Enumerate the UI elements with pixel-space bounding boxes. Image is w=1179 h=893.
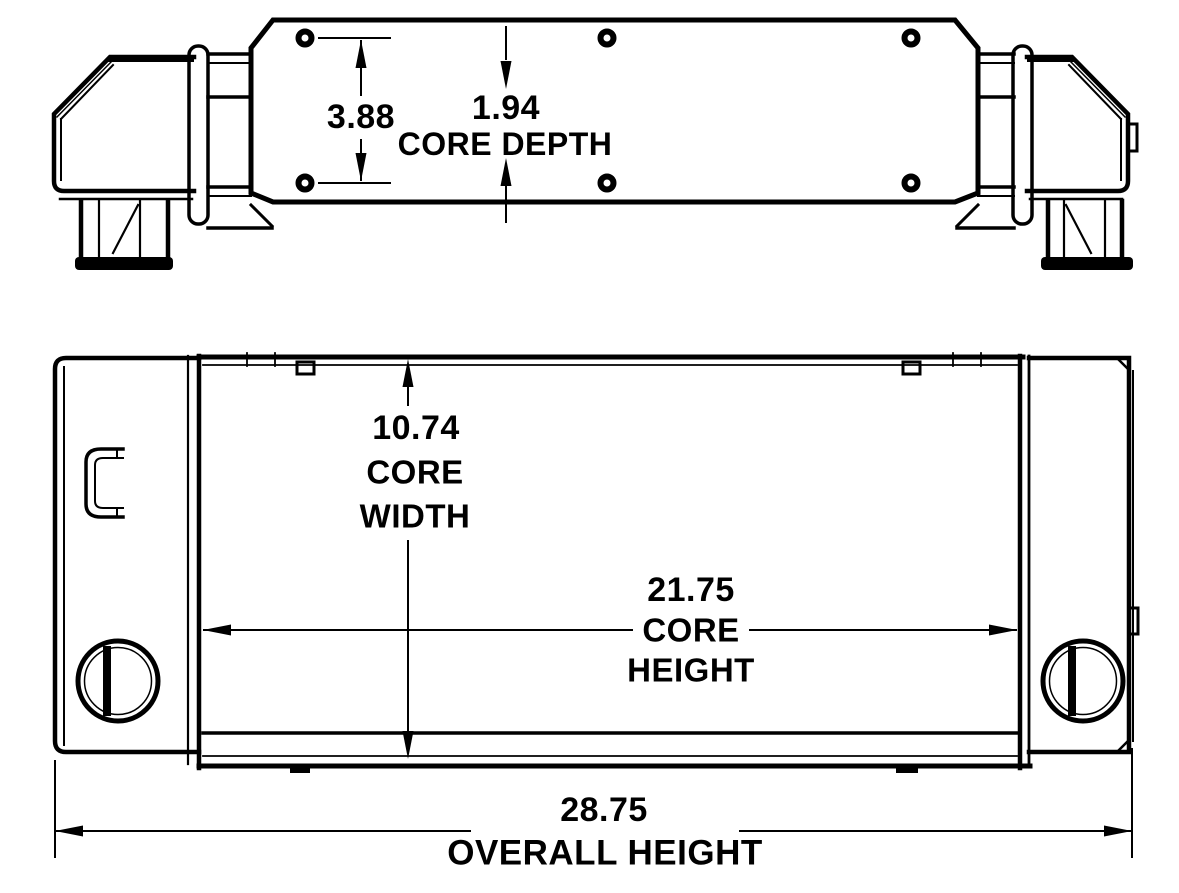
mounting-hole	[601, 32, 614, 45]
arrow-down-icon	[501, 61, 512, 89]
right-clamp-band	[1013, 46, 1032, 224]
right-tank-necks	[957, 54, 1014, 228]
dim-core-width: 10.74 CORE WIDTH	[360, 359, 471, 759]
handle-bracket	[86, 449, 123, 517]
mounting-hole	[299, 32, 312, 45]
dim-core-height-value: 21.75	[647, 571, 735, 609]
drawing-page: 3.88 1.94 CORE DEPTH	[0, 0, 1179, 893]
dim-core-depth: 1.94 CORE DEPTH	[398, 26, 613, 223]
dim-core-depth-value: 1.94	[472, 89, 540, 127]
arrow-up-icon	[403, 359, 414, 387]
top-mounting-tab	[297, 362, 314, 374]
arrow-down-icon	[356, 153, 367, 181]
right-tank-front-view	[1029, 358, 1138, 752]
mounting-hole	[905, 32, 918, 45]
bottom-mounting-tab	[290, 766, 310, 773]
left-drain-cap	[78, 641, 158, 721]
dim-core-height-label-2: HEIGHT	[627, 652, 755, 689]
top-mounting-tab	[903, 362, 920, 374]
dim-core-width-value: 10.74	[372, 409, 460, 447]
dim-hole-spacing-value: 3.88	[327, 98, 395, 136]
mounting-hole	[299, 177, 312, 190]
dim-overall-height-label: OVERALL HEIGHT	[447, 834, 763, 873]
arrow-down-icon	[403, 731, 414, 759]
arrow-right-icon	[1104, 826, 1132, 837]
dim-core-width-label-1: CORE	[366, 454, 463, 491]
front-view: 10.74 CORE WIDTH 21.75 CORE HEIGHT 28.75…	[55, 353, 1138, 873]
mounting-hole	[905, 177, 918, 190]
dim-hole-spacing: 3.88	[318, 38, 395, 183]
dim-core-height-label-1: CORE	[642, 612, 739, 649]
right-hose-bead	[1041, 257, 1133, 270]
right-tank-top-view	[1027, 57, 1137, 270]
dim-core-height: 21.75 CORE HEIGHT	[203, 571, 1017, 689]
left-tank-top-view	[54, 57, 194, 270]
arrow-right-icon	[989, 625, 1017, 636]
dim-core-width-label-2: WIDTH	[360, 498, 471, 535]
left-clamp-band	[189, 46, 208, 224]
arrow-up-icon	[356, 40, 367, 68]
bottom-mounting-tab	[896, 766, 918, 773]
mounting-hole	[601, 177, 614, 190]
right-outlet-pipe	[1041, 201, 1133, 270]
right-side-tab	[1128, 124, 1137, 151]
right-drain-cap	[1043, 641, 1123, 721]
dim-core-depth-label: CORE DEPTH	[398, 126, 613, 162]
arrow-up-icon	[501, 158, 512, 186]
left-hose-bead	[75, 257, 173, 270]
heat-exchanger-drawing: 3.88 1.94 CORE DEPTH	[0, 0, 1179, 893]
left-tank-front-view	[55, 358, 199, 752]
left-tank-necks	[208, 54, 272, 228]
top-view: 3.88 1.94 CORE DEPTH	[54, 20, 1137, 270]
left-outlet-pipe	[75, 201, 173, 270]
core-front-view	[199, 353, 1030, 773]
dim-overall-height-value: 28.75	[560, 791, 648, 829]
